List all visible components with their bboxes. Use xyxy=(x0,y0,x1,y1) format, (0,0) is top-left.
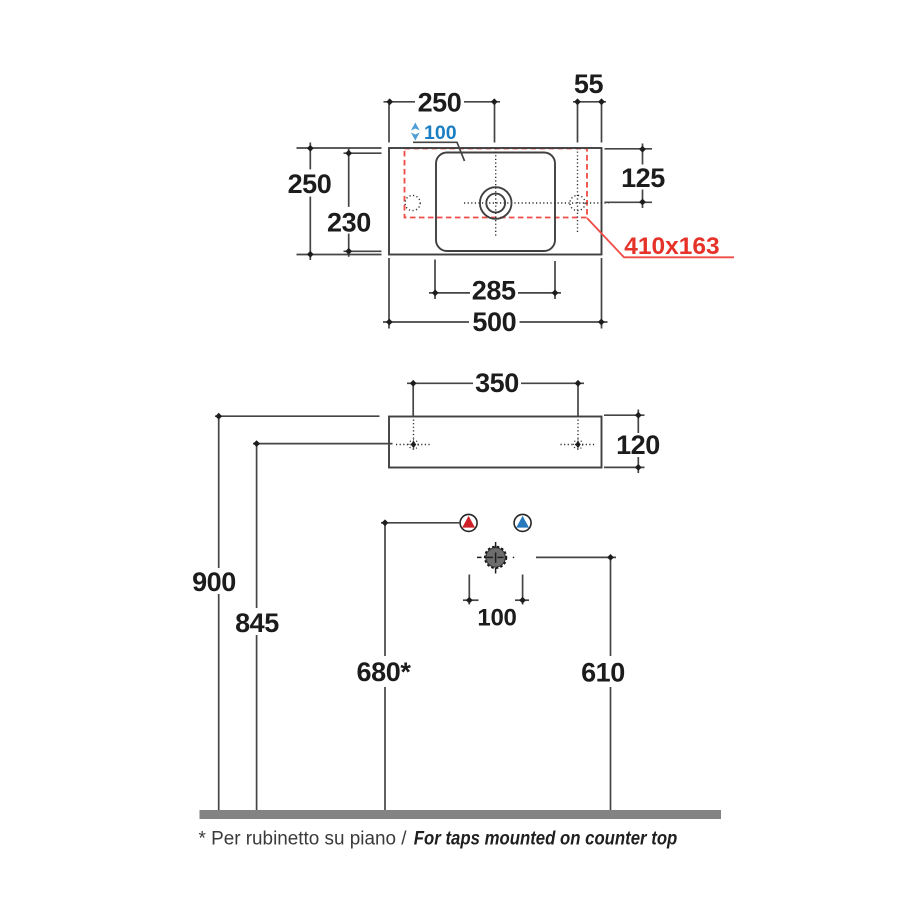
svg-text:845: 845 xyxy=(235,608,279,638)
svg-text:230: 230 xyxy=(327,208,371,238)
svg-text:350: 350 xyxy=(475,368,519,398)
svg-text:55: 55 xyxy=(574,69,604,99)
svg-text:285: 285 xyxy=(472,276,516,306)
svg-text:120: 120 xyxy=(616,430,660,460)
svg-text:125: 125 xyxy=(621,163,665,193)
svg-text:* Per rubinetto su piano /: * Per rubinetto su piano / xyxy=(199,829,408,850)
svg-text:410x163: 410x163 xyxy=(624,233,719,260)
svg-text:680*: 680* xyxy=(357,657,412,687)
svg-text:900: 900 xyxy=(192,567,236,597)
svg-text:100: 100 xyxy=(424,122,457,144)
svg-text:For taps mounted on counter to: For taps mounted on counter top xyxy=(414,829,678,850)
svg-text:610: 610 xyxy=(581,658,625,688)
svg-text:250: 250 xyxy=(418,88,462,118)
svg-text:100: 100 xyxy=(477,605,516,632)
svg-text:500: 500 xyxy=(472,307,516,337)
svg-text:250: 250 xyxy=(288,169,332,199)
